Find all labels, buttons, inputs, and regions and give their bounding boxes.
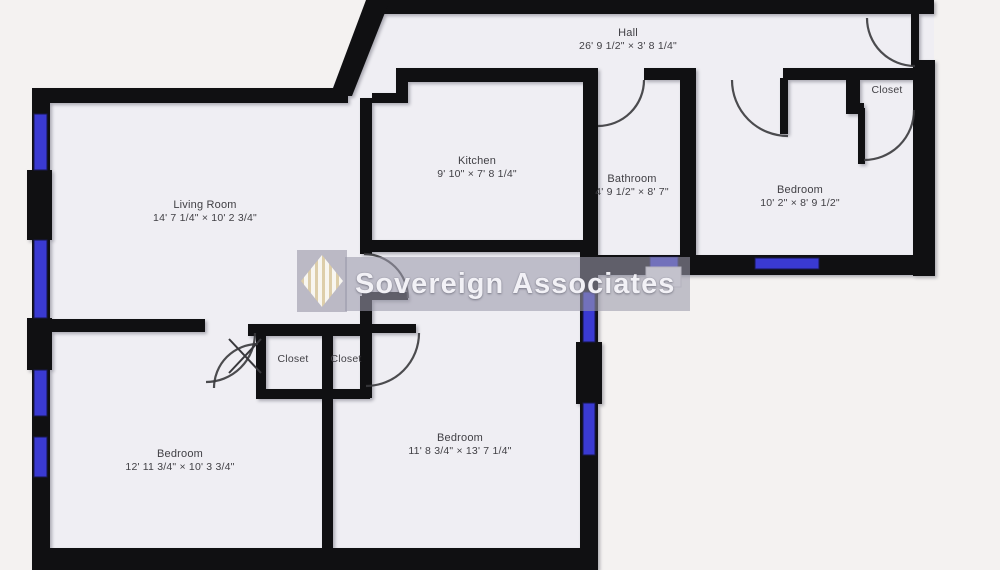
- room-name: Closet: [872, 84, 903, 98]
- wall-foyer-right: [360, 296, 372, 398]
- room-dims: 10' 2" × 8' 9 1/2": [760, 197, 840, 211]
- door-leaf-entry: [911, 14, 919, 66]
- room-dims: 26' 9 1/2" × 3' 8 1/4": [579, 40, 677, 54]
- watermark-logo-icon: [297, 250, 347, 312]
- room-name: Bathroom: [595, 172, 669, 186]
- watermark-text: Sovereign Associates: [355, 268, 675, 301]
- room-name: Closet: [278, 353, 309, 367]
- door-leaf-bedroom-ne: [780, 78, 788, 134]
- wall-bath-bedroom-divider: [680, 68, 696, 260]
- wall-hall-seg-1: [644, 68, 682, 80]
- room-name: Living Room: [153, 198, 257, 212]
- window-bedroom-ne: [755, 258, 819, 269]
- window-south-bedroom-2: [583, 403, 595, 455]
- room-dims: 4' 9 1/2" × 8' 7": [595, 186, 669, 200]
- wall-right: [913, 60, 935, 276]
- room-label-bedroom-sw: Bedroom 12' 11 3/4" × 10' 3 3/4": [125, 447, 234, 475]
- room-label-hall: Hall 26' 9 1/2" × 3' 8 1/4": [579, 26, 677, 54]
- door-leaf-closet-ne: [858, 108, 865, 164]
- watermark-band: Sovereign Associates: [345, 257, 690, 311]
- window-sw-bedroom-2: [34, 437, 47, 477]
- wall-kitchen-right: [583, 68, 598, 254]
- wall-kitchen-top: [396, 68, 586, 82]
- wall-top: [368, 0, 934, 14]
- wall-left-pier-1: [27, 170, 52, 240]
- room-label-closet-east: Closet: [331, 353, 362, 367]
- wall-closet-left: [256, 324, 266, 398]
- door-leaf-bedroom-south: [362, 324, 416, 333]
- room-name: Bedroom: [408, 431, 511, 445]
- room-name: Hall: [579, 26, 677, 40]
- wall-bottom: [32, 548, 598, 570]
- room-label-kitchen: Kitchen 9' 10" × 7' 8 1/4": [437, 154, 517, 182]
- room-dims: 12' 11 3/4" × 10' 3 3/4": [125, 461, 234, 475]
- room-name: Kitchen: [437, 154, 517, 168]
- window-living-2: [34, 240, 47, 318]
- wall-closet-top: [248, 324, 370, 336]
- room-label-bedroom-ne: Bedroom 10' 2" × 8' 9 1/2": [760, 183, 840, 211]
- room-name: Closet: [331, 353, 362, 367]
- room-dims: 11' 8 3/4" × 13' 7 1/4": [408, 445, 511, 459]
- room-label-bedroom-south: Bedroom 11' 8 3/4" × 13' 7 1/4": [408, 431, 511, 459]
- floor-plan-image: Hall 26' 9 1/2" × 3' 8 1/4" Kitchen 9' 1…: [0, 0, 1000, 570]
- wall-kitchen-left: [360, 98, 372, 254]
- wall-closet-bottom: [256, 389, 370, 399]
- room-name: Bedroom: [760, 183, 840, 197]
- window-living-1: [34, 114, 47, 170]
- room-label-closet-ne: Closet: [872, 84, 903, 98]
- room-label-bathroom: Bathroom 4' 9 1/2" × 8' 7": [595, 172, 669, 200]
- room-label-closet-west: Closet: [278, 353, 309, 367]
- room-name: Bedroom: [125, 447, 234, 461]
- wall-south-right-pier: [576, 342, 602, 404]
- window-sw-bedroom-1: [34, 370, 47, 416]
- room-dims: 9' 10" × 7' 8 1/4": [437, 168, 517, 182]
- wall-sw-bedroom-top: [32, 319, 205, 332]
- striped-diamond-icon: [301, 255, 343, 307]
- room-dims: 14' 7 1/4" × 10' 2 3/4": [153, 212, 257, 226]
- wall-living-top: [32, 88, 348, 103]
- wall-kitchen-bottom: [360, 240, 584, 252]
- room-label-living-room: Living Room 14' 7 1/4" × 10' 2 3/4": [153, 198, 257, 226]
